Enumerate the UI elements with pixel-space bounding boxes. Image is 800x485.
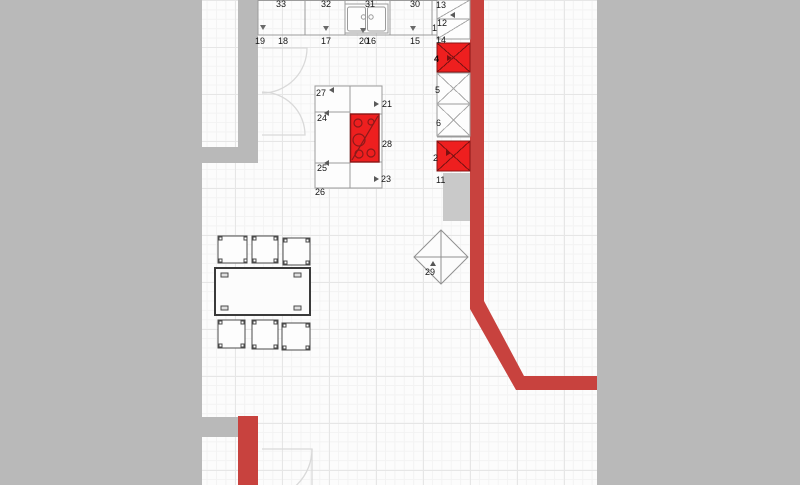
leader-arrow-down-icon (360, 28, 366, 33)
label-29: 29 (425, 268, 435, 277)
label-13: 13 (436, 1, 446, 10)
label-27: 27 (316, 89, 326, 98)
label-5: 5 (435, 86, 440, 95)
label-32: 32 (321, 0, 331, 9)
chair (252, 320, 278, 349)
label-23: 23 (381, 175, 391, 184)
leader-arrow-left-icon (324, 160, 329, 166)
plan-linework (0, 0, 800, 485)
floor-plan-canvas[interactable]: 33 32 31 30 13 12 1 14 4 5 6 2 11 19 18 … (0, 0, 800, 485)
chair (218, 320, 245, 348)
label-16: 16 (366, 37, 376, 46)
leader-arrow-down-icon (323, 26, 329, 31)
diamond-object[interactable] (414, 230, 468, 284)
leader-arrow-right-icon (374, 176, 379, 182)
leader-arrow-down-icon (260, 25, 266, 30)
leader-arrow-right-icon (374, 101, 379, 107)
label-4: 4 (434, 55, 439, 64)
chair (282, 323, 310, 350)
label-33: 33 (276, 0, 286, 9)
label-2: 2 (433, 154, 438, 163)
label-12: 12 (437, 19, 447, 28)
leader-arrow-left-icon (450, 12, 455, 18)
label-15: 15 (410, 37, 420, 46)
label-1: 1 (432, 24, 437, 33)
leader-arrow-right-icon (446, 150, 451, 156)
label-31: 31 (365, 0, 375, 9)
label-17: 17 (321, 37, 331, 46)
label-6: 6 (436, 119, 441, 128)
leader-arrow-left-icon (324, 110, 329, 116)
leader-arrow-right-icon (447, 55, 452, 61)
leader-arrow-up-icon (430, 261, 436, 266)
cooktop[interactable] (351, 114, 380, 162)
label-14: 14 (436, 36, 446, 45)
chair (283, 238, 310, 265)
label-19: 19 (255, 37, 265, 46)
label-26: 26 (315, 188, 325, 197)
label-30: 30 (410, 0, 420, 9)
label-21: 21 (382, 100, 392, 109)
leader-arrow-down-icon (410, 26, 416, 31)
chair (252, 236, 278, 263)
double-door-left[interactable] (262, 48, 307, 135)
label-11: 11 (436, 176, 445, 185)
chair (218, 236, 247, 263)
leader-arrow-left-icon (329, 87, 334, 93)
label-18: 18 (278, 37, 288, 46)
wall-red-bottom (238, 416, 258, 485)
label-28: 28 (382, 140, 392, 149)
wall-red-right (470, 0, 597, 390)
door-bottom[interactable] (262, 449, 312, 485)
dining-table[interactable] (215, 268, 310, 315)
